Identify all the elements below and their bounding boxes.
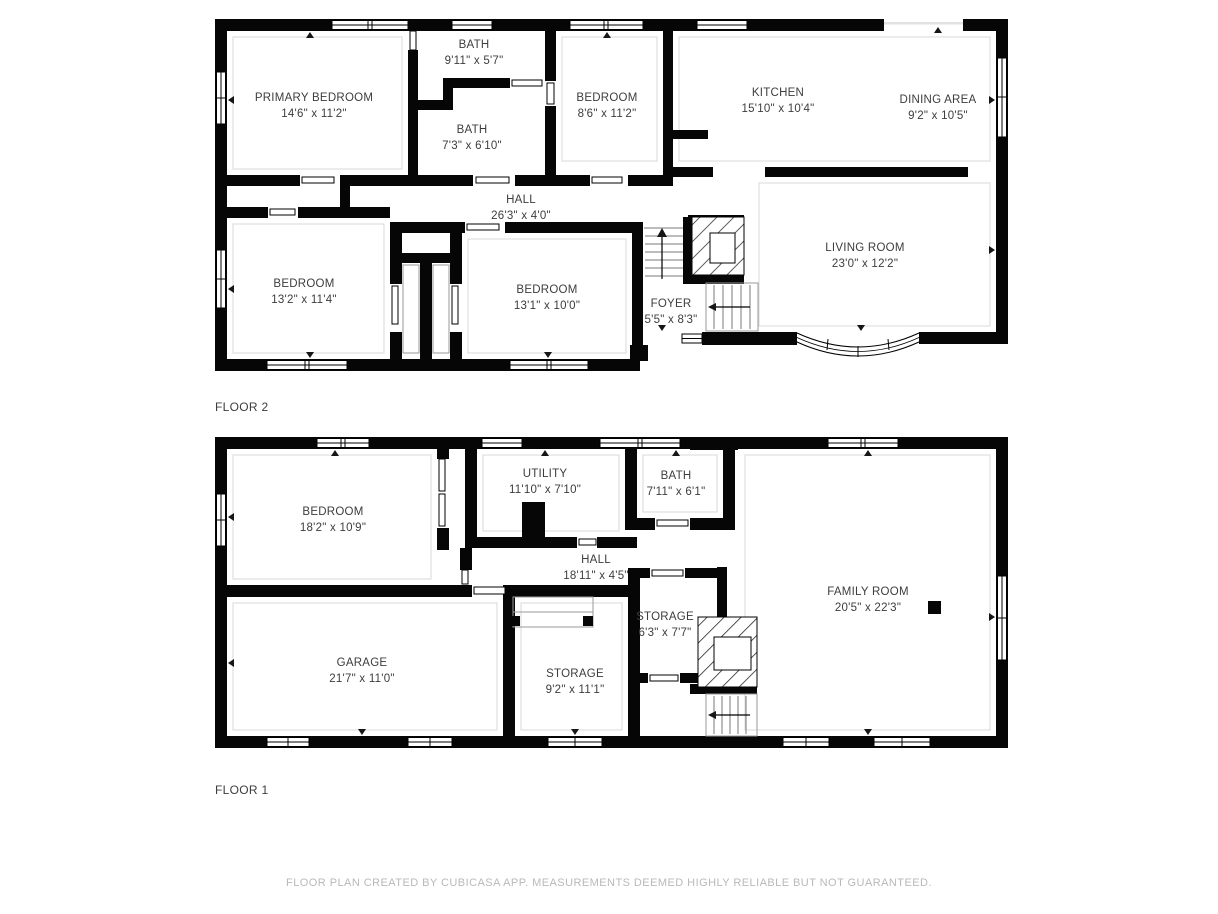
- room-label-foyer: FOYER5'5" x 8'3": [644, 296, 697, 328]
- room-label-garage: GARAGE21'7" x 11'0": [329, 655, 394, 687]
- chimney-hatch: [698, 617, 757, 687]
- floor2-label: FLOOR 2: [215, 400, 268, 414]
- chimney-hatch: [683, 217, 744, 284]
- support-post: [928, 601, 941, 614]
- room-label-bedroom-131: BEDROOM13'1" x 10'0": [514, 282, 580, 314]
- floor2-plan: [215, 19, 1008, 371]
- room-label-bedroom-182: BEDROOM18'2" x 10'9": [300, 504, 366, 536]
- room-label-hall-floor1: HALL18'11" x 4'5": [563, 552, 628, 584]
- floor-plan-page: PRIMARY BEDROOM14'6" x 11'2" BATH9'11" x…: [0, 0, 1218, 914]
- room-label-hall-floor2: HALL26'3" x 4'0": [491, 192, 551, 224]
- room-label-primary-bedroom: PRIMARY BEDROOM14'6" x 11'2": [255, 90, 373, 122]
- floor1-label: FLOOR 1: [215, 783, 268, 797]
- room-label-bath-floor1: BATH7'11" x 6'1": [647, 468, 706, 500]
- room-label-storage-92: STORAGE9'2" x 11'1": [546, 666, 605, 698]
- floor-plan-drawing: [0, 0, 1218, 914]
- hall-closet: [510, 597, 593, 627]
- floor2-lower-stairs: [706, 283, 758, 331]
- room-label-dining-area: DINING AREA9'2" x 10'5": [900, 92, 977, 124]
- room-label-bedroom-132: BEDROOM13'2" x 11'4": [271, 276, 336, 308]
- room-label-family-room: FAMILY ROOM20'5" x 22'3": [827, 584, 909, 616]
- bay-window: [797, 333, 919, 357]
- room-label-bath-lower: BATH7'3" x 6'10": [442, 122, 502, 154]
- room-label-storage-63: STORAGE6'3" x 7'7": [636, 609, 694, 641]
- room-label-kitchen: KITCHEN15'10" x 10'4": [742, 85, 815, 117]
- room-label-utility: UTILITY11'10" x 7'10": [509, 466, 581, 498]
- room-label-bath-upper: BATH9'11" x 5'7": [445, 37, 504, 69]
- room-label-bedroom-86: BEDROOM8'6" x 11'2": [576, 90, 637, 122]
- room-label-living-room: LIVING ROOM23'0" x 12'2": [825, 240, 904, 272]
- footer-disclaimer: FLOOR PLAN CREATED BY CUBICASA APP. MEAS…: [0, 877, 1218, 889]
